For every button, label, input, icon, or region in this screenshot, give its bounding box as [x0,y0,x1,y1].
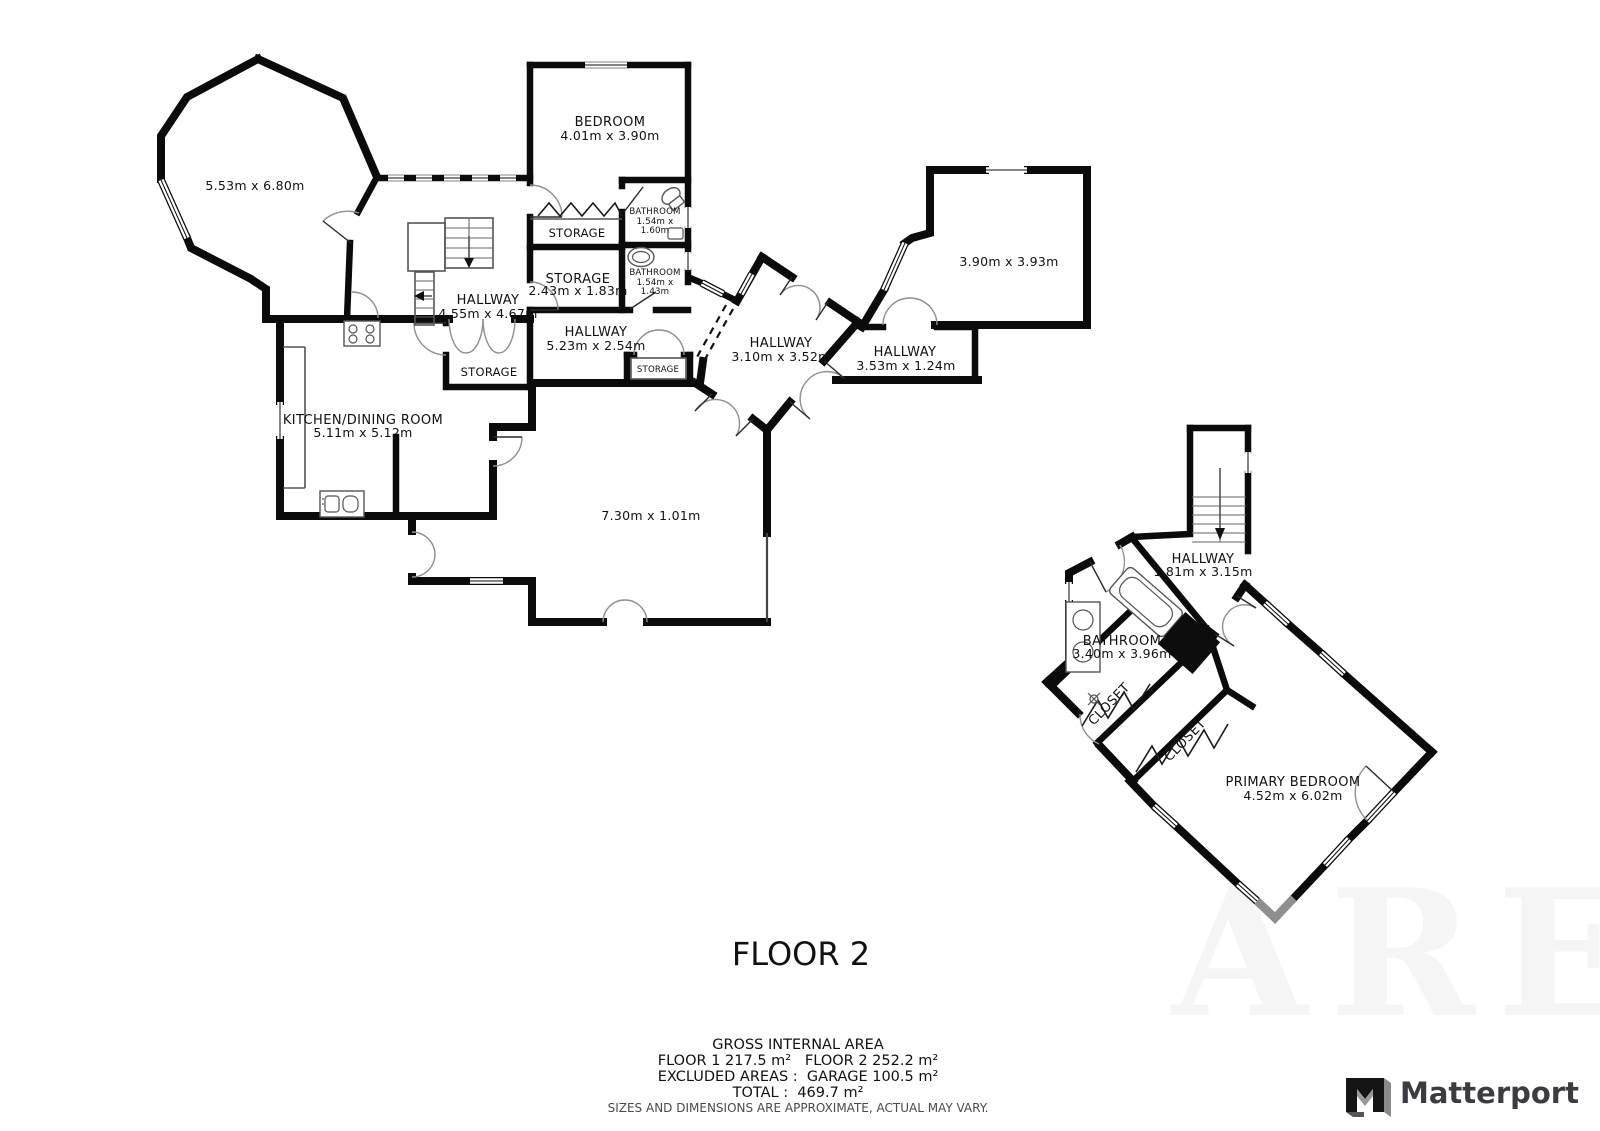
room-dims-bedroom: 4.01m x 3.90m [560,128,659,143]
room-dims-primary-bedroom: 4.52m x 6.02m [1243,788,1342,803]
room-label-closet-b: CLOSET [1162,716,1210,764]
room-label-bathroom-mid: BATHROOM [629,268,680,278]
area-summary-line3: TOTAL : 469.7 m² [732,1085,864,1101]
room-dims-kitchen: 5.11m x 5.12m [313,425,412,440]
windows [161,65,1394,901]
room-label-storage-small: STORAGE [637,365,679,375]
ceiling-light-icon [1088,693,1100,705]
room-dims-hallway-main: 4.55m x 4.67m [438,306,537,321]
area-summary-line1: FLOOR 1 217.5 m² FLOOR 2 252.2 m² [658,1053,938,1069]
room-dims-hallway-center: 5.23m x 2.54m [546,338,645,353]
room-dims-hallway-diamond: 3.10m x 3.52m [731,349,830,364]
stairs-down-arrow [464,258,474,268]
floor-title: FLOOR 2 [732,935,870,973]
room-dims-hallway-suite: 1.81m x 3.15m [1153,564,1252,579]
room-label-storage-lower: STORAGE [461,365,518,379]
floor-plan-canvas: ARE [0,0,1600,1131]
room-dims-bathroom-top-2: 1.60m [641,226,670,236]
area-summary-heading: GROSS INTERNAL AREA [712,1037,884,1053]
kitchen-sink-icon [320,491,364,517]
room-dims-bathroom-mid-2: 1.43m [641,287,670,297]
room-dims-storage-mid: 2.43m x 1.83m [528,283,627,298]
room-dims-octagon: 5.53m x 6.80m [205,178,304,193]
room-dims-390: 3.90m x 3.93m [959,254,1058,269]
walls-right-cluster [1047,428,1432,918]
matterport-logo: Matterport [1346,1076,1579,1117]
stove-icon [344,321,380,346]
footer: FLOOR 2 GROSS INTERNAL AREA FLOOR 1 217.… [608,935,989,1115]
fixtures [283,184,1220,705]
basin-icon [628,248,654,267]
stairwell-down-arrow [1215,528,1225,540]
room-label-closet-a: CLOSET [1086,680,1134,728]
room-label-storage-strip: STORAGE [549,226,606,240]
room-label-bathroom-top: BATHROOM [629,207,680,217]
room-dims-bathroom-suite: 3.40m x 3.96m [1072,646,1171,661]
door-swings [323,185,1394,820]
room-dims-hallway-strip: 3.53m x 1.24m [856,358,955,373]
matterport-logo-icon [1346,1078,1391,1117]
area-summary-line2: EXCLUDED AREAS : GARAGE 100.5 m² [658,1069,939,1085]
room-dims-730: 7.30m x 1.01m [601,508,700,523]
disclaimer-text: SIZES AND DIMENSIONS ARE APPROXIMATE, AC… [608,1101,989,1115]
floor-plan-page: ARE [0,0,1600,1131]
matterport-logo-text: Matterport [1400,1076,1579,1110]
